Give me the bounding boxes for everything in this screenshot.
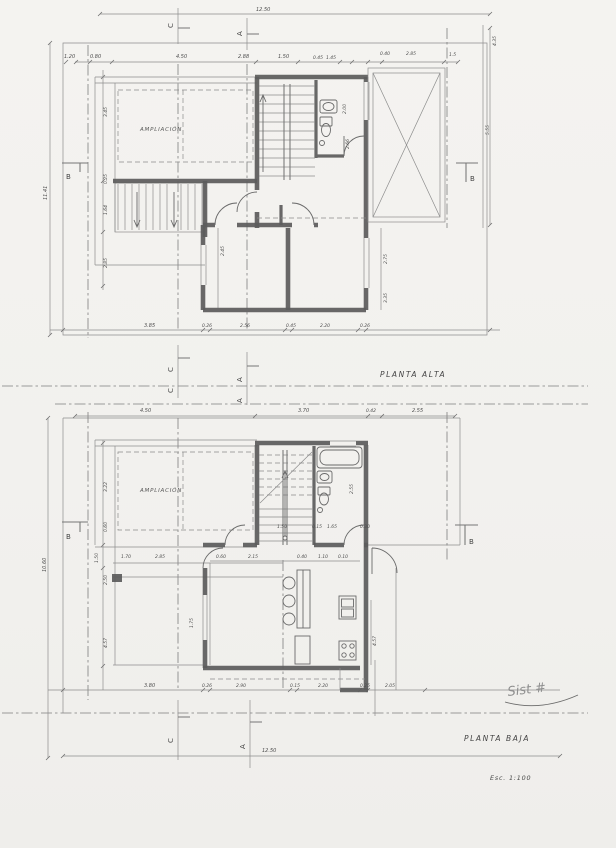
dim-label: 1.45 xyxy=(326,55,336,61)
scale-label: Esc. 1:100 xyxy=(490,774,531,782)
dim-label: 2.50 xyxy=(103,575,109,585)
dim-label: 0.15 xyxy=(312,524,322,530)
dim-label: 0.30 xyxy=(360,524,370,530)
section-marker-label: A xyxy=(236,377,244,382)
dim-label: 0.45 xyxy=(313,55,323,61)
dim-label: 1.5 xyxy=(449,52,456,58)
dim-label: 4.50 xyxy=(140,408,151,414)
dim-label: 4.50 xyxy=(176,54,187,60)
dim-label: 2.85 xyxy=(406,51,416,57)
walls-upper xyxy=(113,77,369,310)
dim-label: 1.65 xyxy=(327,524,337,530)
dim-label: 2.56 xyxy=(240,323,250,329)
dim-label: 3.22 xyxy=(103,482,109,492)
room-label-ampliacion: AMPLIACIÓN xyxy=(139,126,182,133)
dim-label: 0.26 xyxy=(202,323,212,329)
section-marker-label: A xyxy=(239,744,247,749)
scanned-floorplan-sheet: B B C A C C A A 12.50 1.20 0.80 4.50 2.8… xyxy=(0,0,616,848)
signature: Sist # xyxy=(507,680,547,700)
dim-label: 3.85 xyxy=(144,323,155,329)
counter-bar xyxy=(297,570,310,628)
dim-label: 3.70 xyxy=(298,408,309,414)
dim-label: 0.10 xyxy=(338,554,348,560)
dim-label: 0.25 xyxy=(103,174,109,184)
dim-label: 2.20 xyxy=(320,323,330,329)
toilet-tank-icon xyxy=(318,487,330,495)
dim-label: 2.55 xyxy=(349,484,355,494)
dim-label: 2.20 xyxy=(318,683,328,689)
section-marker-label: C xyxy=(167,23,175,28)
dim-label: 12.50 xyxy=(262,748,276,754)
dim-label: 4.57 xyxy=(372,636,378,646)
section-marker-label: C xyxy=(167,388,175,393)
dim-label: 1.50 xyxy=(278,54,289,60)
dim-label: 4.57 xyxy=(103,638,109,648)
dim-label: 0.40 xyxy=(297,554,307,560)
toilet-bowl-icon xyxy=(322,124,331,137)
bathroom-fixtures-lower xyxy=(317,447,362,513)
toilet-tank-icon xyxy=(320,117,332,126)
sink-icon xyxy=(317,471,332,483)
section-markers-bottom-upper: C C A A xyxy=(167,358,259,403)
dim-label: 1.75 xyxy=(189,618,195,628)
plan-alta: B B C A C C A A 12.50 1.20 0.80 4.50 2.8… xyxy=(43,7,500,405)
section-marker-label: B xyxy=(469,538,474,546)
dim-label: 1.50 xyxy=(277,524,287,530)
section-markers-bottom-lower: C A xyxy=(167,717,262,749)
section-marker-label: C xyxy=(167,738,175,743)
dim-label: 0.45 xyxy=(286,323,296,329)
dim-label: 4.35 xyxy=(492,36,498,46)
dim-label: 2.85 xyxy=(103,258,109,268)
section-marker-label: B xyxy=(470,175,475,183)
kitchen-fixtures xyxy=(283,570,356,664)
stool-icon xyxy=(283,595,295,607)
plan-alta-grid xyxy=(63,8,487,405)
room-label-ampliacion: AMPLIACIÓN xyxy=(139,487,182,494)
section-marker-label: C xyxy=(167,367,175,372)
dim-label: 0.15 xyxy=(290,683,300,689)
plan-title-alta: PLANTA ALTA xyxy=(380,370,446,379)
section-markers-top-upper: C A xyxy=(167,23,259,36)
kitchen-island xyxy=(295,636,310,664)
section-marker-label: A xyxy=(236,31,244,36)
dim-label: 0.42 xyxy=(366,408,376,414)
section-marker-b-left-upper: B xyxy=(62,163,88,181)
dim-label: 0.60 xyxy=(216,554,226,560)
dim-label: 12.50 xyxy=(256,7,270,13)
dim-label: 2.88 xyxy=(238,54,249,60)
bathroom-fixtures-upper xyxy=(320,100,338,146)
dim-label: 1.10 xyxy=(318,554,328,560)
dim-label: 2.90 xyxy=(236,683,246,689)
dim-label: 0.26 xyxy=(360,323,370,329)
plan-alta-dimension-lines xyxy=(48,12,500,337)
stool-icon xyxy=(283,613,295,625)
section-marker-b-left-lower: B xyxy=(62,522,88,541)
dim-label: 3.35 xyxy=(383,293,389,303)
section-marker-label: A xyxy=(236,398,244,403)
dim-label: 5.55 xyxy=(485,125,491,135)
section-marker-b-right-lower: B xyxy=(455,525,478,546)
dim-label: 1.20 xyxy=(64,54,75,60)
plan-title-baja: PLANTA BAJA xyxy=(464,734,530,743)
stairs-lower xyxy=(259,450,313,545)
dim-label: 10.60 xyxy=(42,558,48,572)
dim-label: 1.50 xyxy=(94,553,100,563)
stairs-upper xyxy=(259,84,315,180)
dim-label: 3.80 xyxy=(144,683,155,689)
terrace-crossed-box xyxy=(368,68,445,222)
floorplan-drawing: B B C A C C A A 12.50 1.20 0.80 4.50 2.8… xyxy=(0,0,616,848)
dim-label: 2.00 xyxy=(342,104,348,114)
dim-label: 2.15 xyxy=(248,554,258,560)
dim-label: 2.05 xyxy=(385,683,395,689)
section-marker-label: B xyxy=(66,173,71,181)
section-marker-b-right-upper: B xyxy=(456,163,478,183)
dim-label: 0.80 xyxy=(90,54,101,60)
dim-label: 2.66 xyxy=(345,139,351,149)
dim-label: 1.70 xyxy=(121,554,131,560)
stool-icon xyxy=(283,577,295,589)
dim-label: 2.45 xyxy=(220,246,226,256)
plan-baja-dimension-lines xyxy=(46,414,562,760)
dim-label: 1.64 xyxy=(103,205,109,215)
dim-label: 2.85 xyxy=(155,554,165,560)
plan-baja-grid xyxy=(63,412,460,768)
dim-label: 2.75 xyxy=(383,254,389,264)
dim-label: 2.55 xyxy=(412,408,423,414)
ampliacion-area-upper xyxy=(95,77,257,265)
dim-label: 0.25 xyxy=(360,683,370,689)
section-marker-label: B xyxy=(66,533,71,541)
dim-label: 3.45 xyxy=(103,107,109,117)
dim-label: 0.40 xyxy=(380,51,390,57)
sheet-annotations: Esc. 1:100 Sist # xyxy=(490,680,578,782)
dim-label: 0.26 xyxy=(202,683,212,689)
dim-label: 11.41 xyxy=(43,186,49,200)
plan-baja: B B C A 4.50 3.70 0.42 2.55 10.60 3.22 0… xyxy=(42,408,562,768)
dim-label: 0.60 xyxy=(103,522,109,532)
